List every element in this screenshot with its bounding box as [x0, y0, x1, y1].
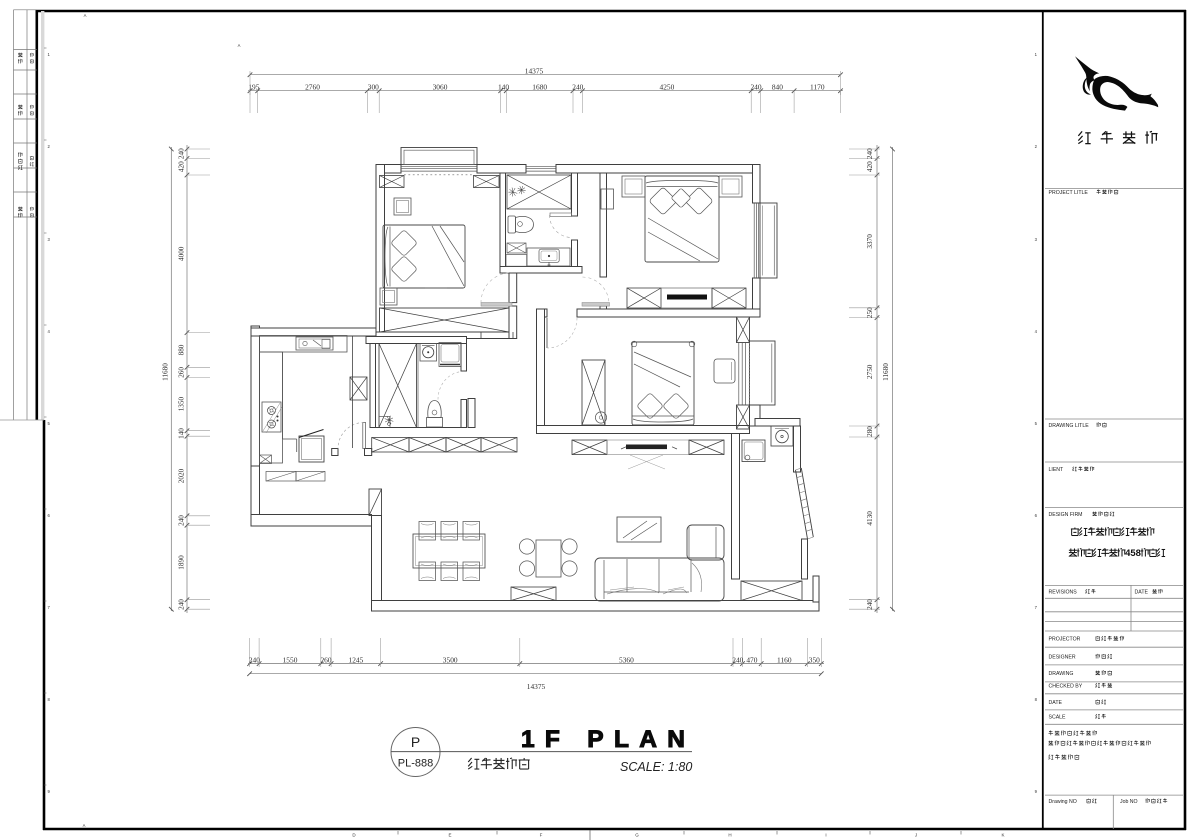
- svg-text:F: F: [540, 833, 543, 838]
- svg-text:240: 240: [750, 82, 761, 91]
- svg-text:E: E: [448, 833, 451, 838]
- svg-text:DRAWING LITLE: DRAWING LITLE: [1049, 423, 1090, 429]
- svg-text:DESIGN FIRM: DESIGN FIRM: [1049, 512, 1083, 518]
- svg-text:1245: 1245: [349, 655, 364, 664]
- svg-text:280: 280: [866, 426, 874, 437]
- svg-text:240: 240: [178, 599, 186, 610]
- svg-text:PROJECT LITLE: PROJECT LITLE: [1049, 190, 1089, 196]
- svg-text:4130: 4130: [866, 511, 874, 526]
- svg-text:3500: 3500: [443, 655, 458, 664]
- svg-text:840: 840: [772, 82, 783, 91]
- svg-text:4250: 4250: [660, 82, 675, 91]
- svg-text:P: P: [411, 734, 420, 750]
- svg-text:300: 300: [368, 82, 379, 91]
- svg-text:J: J: [915, 833, 917, 838]
- svg-text:3060: 3060: [433, 82, 448, 91]
- svg-text:SCALE: 1:80: SCALE: 1:80: [620, 760, 692, 774]
- svg-text:A: A: [83, 823, 86, 828]
- svg-text:1F PLAN: 1F PLAN: [521, 726, 695, 753]
- svg-text:CHECKED BY: CHECKED BY: [1049, 684, 1083, 690]
- svg-text:2750: 2750: [866, 364, 874, 379]
- svg-text:458: 458: [1125, 548, 1141, 559]
- svg-text:240: 240: [572, 82, 583, 91]
- svg-text:DRAWING: DRAWING: [1049, 671, 1074, 677]
- svg-text:REVISIONS: REVISIONS: [1049, 590, 1078, 596]
- svg-text:11680: 11680: [882, 363, 890, 381]
- svg-text:240: 240: [249, 655, 260, 664]
- svg-text:240: 240: [866, 148, 874, 159]
- svg-text:1890: 1890: [178, 555, 186, 570]
- svg-text:250: 250: [866, 307, 874, 318]
- svg-text:PROJECTOR: PROJECTOR: [1049, 637, 1081, 643]
- svg-text:2020: 2020: [178, 468, 186, 483]
- svg-text:Job NO: Job NO: [1120, 799, 1138, 805]
- svg-text:1680: 1680: [532, 82, 547, 91]
- svg-text:G: G: [635, 833, 639, 838]
- svg-text:H: H: [728, 833, 731, 838]
- svg-text:3370: 3370: [866, 234, 874, 249]
- svg-text:DATE: DATE: [1049, 700, 1063, 706]
- svg-text:LIENT: LIENT: [1049, 467, 1065, 473]
- svg-text:1160: 1160: [777, 655, 792, 664]
- svg-text:11680: 11680: [162, 363, 170, 381]
- svg-text:140: 140: [498, 82, 509, 91]
- svg-text:260: 260: [178, 367, 186, 378]
- svg-text:4000: 4000: [178, 246, 186, 261]
- svg-text:2760: 2760: [305, 82, 320, 91]
- svg-text:PL-888: PL-888: [398, 758, 433, 770]
- svg-text:A: A: [84, 13, 87, 18]
- svg-text:1350: 1350: [178, 397, 186, 412]
- svg-text:14375: 14375: [525, 67, 544, 76]
- svg-text:SCALE: SCALE: [1049, 715, 1067, 721]
- svg-text:260: 260: [320, 655, 331, 664]
- svg-text:240: 240: [178, 148, 186, 159]
- svg-text:Drawing NO: Drawing NO: [1049, 799, 1077, 805]
- svg-text:1170: 1170: [810, 82, 825, 91]
- svg-text:470: 470: [746, 655, 757, 664]
- svg-text:1550: 1550: [283, 655, 298, 664]
- svg-text:880: 880: [178, 344, 186, 355]
- svg-text:A: A: [238, 43, 241, 48]
- svg-text:240: 240: [866, 599, 874, 610]
- svg-text:5360: 5360: [619, 655, 634, 664]
- svg-text:140: 140: [178, 428, 186, 439]
- svg-text:420: 420: [178, 161, 186, 172]
- svg-text:K: K: [1001, 833, 1004, 838]
- svg-text:240: 240: [178, 515, 186, 526]
- svg-text:14375: 14375: [527, 682, 546, 691]
- svg-text:240: 240: [732, 655, 743, 664]
- svg-text:DESIGNER: DESIGNER: [1049, 655, 1076, 661]
- svg-text:420: 420: [866, 161, 874, 172]
- svg-text:350: 350: [809, 655, 820, 664]
- svg-text:I: I: [825, 833, 826, 838]
- svg-text:DATE: DATE: [1135, 590, 1149, 596]
